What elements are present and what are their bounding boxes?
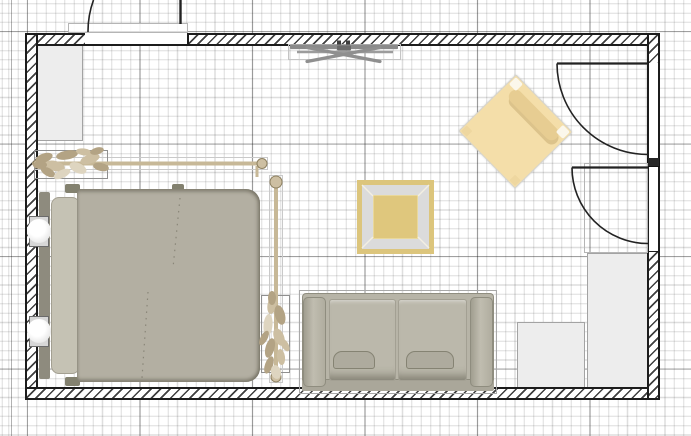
rug-center	[373, 195, 418, 239]
chair-armcap-right	[556, 125, 570, 139]
accent-armchair[interactable]	[458, 74, 573, 189]
wall-right-lower-segment[interactable]	[647, 250, 660, 400]
lamp-globe	[27, 219, 51, 243]
door-opening-right-lower[interactable]	[647, 167, 660, 251]
bedside-lamp-upper[interactable]	[27, 215, 53, 249]
sofa-arm-right	[470, 297, 493, 387]
wall-top-right-segment[interactable]	[187, 33, 660, 46]
door-right-lower[interactable]	[572, 164, 648, 253]
curtain-rod-top[interactable]	[33, 146, 268, 182]
entry-door-top[interactable]	[69, 0, 188, 33]
wardrobe-top-left[interactable]	[37, 45, 83, 141]
two-seat-sofa[interactable]	[299, 290, 497, 394]
chair-corner-tab	[509, 175, 520, 186]
chair-corner-tab	[461, 125, 472, 136]
garland-side	[257, 291, 291, 380]
bedside-lamp-lower[interactable]	[27, 315, 53, 349]
sofa-pillow-left	[333, 351, 375, 369]
chair-backrest	[506, 87, 562, 143]
door-right-upper[interactable]	[557, 64, 648, 155]
cabinet-tall-right[interactable]	[587, 253, 650, 389]
bed-duvet	[77, 189, 260, 382]
cabinet-short-right[interactable]	[517, 322, 585, 389]
curtain-rod-side[interactable]	[257, 176, 291, 383]
wall-right-upper-segment[interactable]	[647, 33, 660, 65]
door-opening-top[interactable]	[85, 31, 187, 46]
chair-armcap-left	[509, 77, 523, 91]
bed-pillow	[51, 197, 80, 374]
floor-plan-canvas[interactable]	[0, 0, 691, 436]
sofa-pillow-right	[406, 351, 454, 369]
double-bed[interactable]	[37, 186, 262, 385]
square-area-rug[interactable]	[357, 180, 434, 254]
wall-right-mullion[interactable]	[647, 157, 660, 167]
lamp-globe	[27, 319, 51, 343]
sofa-arm-left	[303, 297, 326, 387]
garland-top	[33, 146, 110, 182]
door-opening-right-upper[interactable]	[647, 63, 660, 158]
